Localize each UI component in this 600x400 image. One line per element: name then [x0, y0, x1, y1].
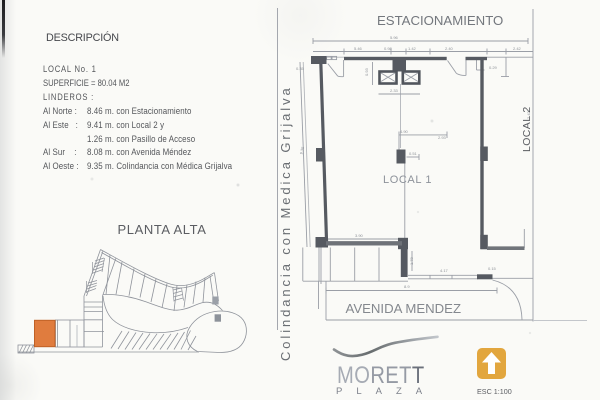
svg-text:2.42: 2.42 [513, 46, 522, 51]
svg-text:3.90: 3.90 [355, 233, 364, 238]
svg-text:0.98: 0.98 [384, 46, 393, 51]
svg-text:1.78: 1.78 [409, 256, 414, 265]
svg-text:8.9: 8.9 [404, 284, 410, 289]
svg-text:2.93: 2.93 [438, 135, 447, 140]
svg-text:0.15: 0.15 [488, 266, 497, 271]
svg-text:4.17: 4.17 [440, 268, 449, 273]
svg-text:0.51: 0.51 [409, 151, 418, 156]
svg-text:4.90: 4.90 [400, 129, 409, 134]
svg-text:2.33: 2.33 [390, 88, 399, 93]
svg-text:0.93: 0.93 [364, 67, 369, 76]
svg-text:9.35: 9.35 [299, 145, 306, 154]
svg-text:5.96: 5.96 [390, 35, 399, 40]
svg-text:5.46: 5.46 [354, 46, 363, 51]
svg-text:0.29: 0.29 [489, 65, 498, 70]
svg-text:1.42: 1.42 [408, 46, 417, 51]
svg-text:0.35: 0.35 [296, 66, 305, 71]
svg-text:2.40: 2.40 [445, 46, 454, 51]
